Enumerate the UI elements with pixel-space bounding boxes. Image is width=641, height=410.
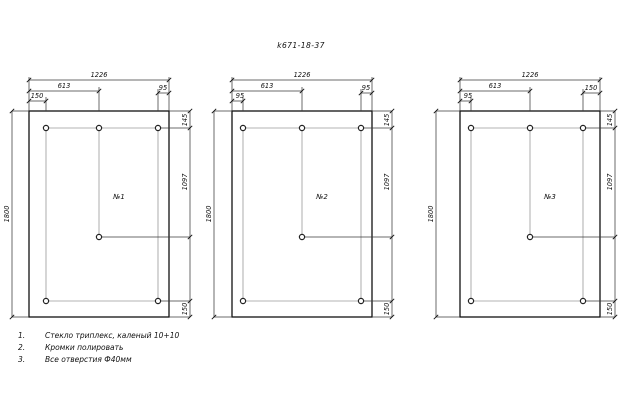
hole-marker <box>527 234 532 239</box>
panel-2: 1226 613 95 95 1800 145 1097 150 №2 <box>205 71 394 319</box>
dim-left-offset: 95 <box>236 92 244 100</box>
dim-top-offset: 145 <box>181 114 189 127</box>
dim-height: 1800 <box>205 206 213 223</box>
note-number: 2. <box>18 342 45 354</box>
dim-mid: 613 <box>261 82 274 90</box>
dim-height: 1800 <box>3 206 11 223</box>
dim-top-offset: 145 <box>383 114 391 127</box>
panel-3: 1226 613 95 150 1800 145 1097 150 №3 <box>427 71 617 319</box>
dim-width: 1226 <box>522 71 539 79</box>
hole-marker <box>96 234 101 239</box>
dim-top-offset: 145 <box>606 114 614 127</box>
dim-mid-drop: 1097 <box>606 173 614 191</box>
note-text: Все отверстия Ф40мм <box>45 354 132 366</box>
note-text: Кромки полировать <box>45 342 123 354</box>
note-text: Стекло триплекс, каленый 10+10 <box>45 330 179 342</box>
note-item: 1. Стекло триплекс, каленый 10+10 <box>18 330 179 342</box>
dim-mid-drop: 1097 <box>181 173 189 191</box>
hole-marker <box>155 125 160 130</box>
dim-mid-drop: 1097 <box>383 173 391 191</box>
dim-right-offset: 95 <box>159 84 167 92</box>
dim-bottom-offset: 150 <box>606 303 614 316</box>
dim-width: 1226 <box>294 71 311 79</box>
panel-label: №1 <box>112 193 125 201</box>
dim-height: 1800 <box>427 206 435 223</box>
note-number: 1. <box>18 330 45 342</box>
hole-marker <box>155 298 160 303</box>
note-item: 2. Кромки полировать <box>18 342 179 354</box>
hole-marker <box>240 298 245 303</box>
notes-list: 1. Стекло триплекс, каленый 10+10 2. Кро… <box>18 330 179 366</box>
drawing-title: k671-18-37 <box>277 41 325 50</box>
dim-mid: 613 <box>489 82 502 90</box>
dim-left-offset: 150 <box>31 92 44 100</box>
hole-marker <box>358 298 363 303</box>
dim-bottom-offset: 150 <box>181 303 189 316</box>
hole-marker <box>468 298 473 303</box>
note-number: 3. <box>18 354 45 366</box>
hole-marker <box>240 125 245 130</box>
hole-marker <box>580 125 585 130</box>
hole-marker <box>358 125 363 130</box>
hole-marker <box>96 125 101 130</box>
panel-1: 1226 613 150 95 1800 145 1097 150 №1 <box>3 71 192 319</box>
hole-marker <box>43 125 48 130</box>
hole-marker <box>468 125 473 130</box>
drawing-sheet: k671-18-37 <box>0 0 641 410</box>
panel-label: №2 <box>315 193 328 201</box>
hole-marker <box>299 234 304 239</box>
hole-marker <box>43 298 48 303</box>
dim-left-offset: 95 <box>464 92 472 100</box>
dim-width: 1226 <box>91 71 108 79</box>
hole-marker <box>527 125 532 130</box>
panel-label: №3 <box>543 193 556 201</box>
dim-bottom-offset: 150 <box>383 303 391 316</box>
hole-marker <box>580 298 585 303</box>
dim-right-offset: 150 <box>585 84 598 92</box>
hole-marker <box>299 125 304 130</box>
note-item: 3. Все отверстия Ф40мм <box>18 354 179 366</box>
dim-right-offset: 95 <box>362 84 370 92</box>
dim-mid: 613 <box>58 82 71 90</box>
